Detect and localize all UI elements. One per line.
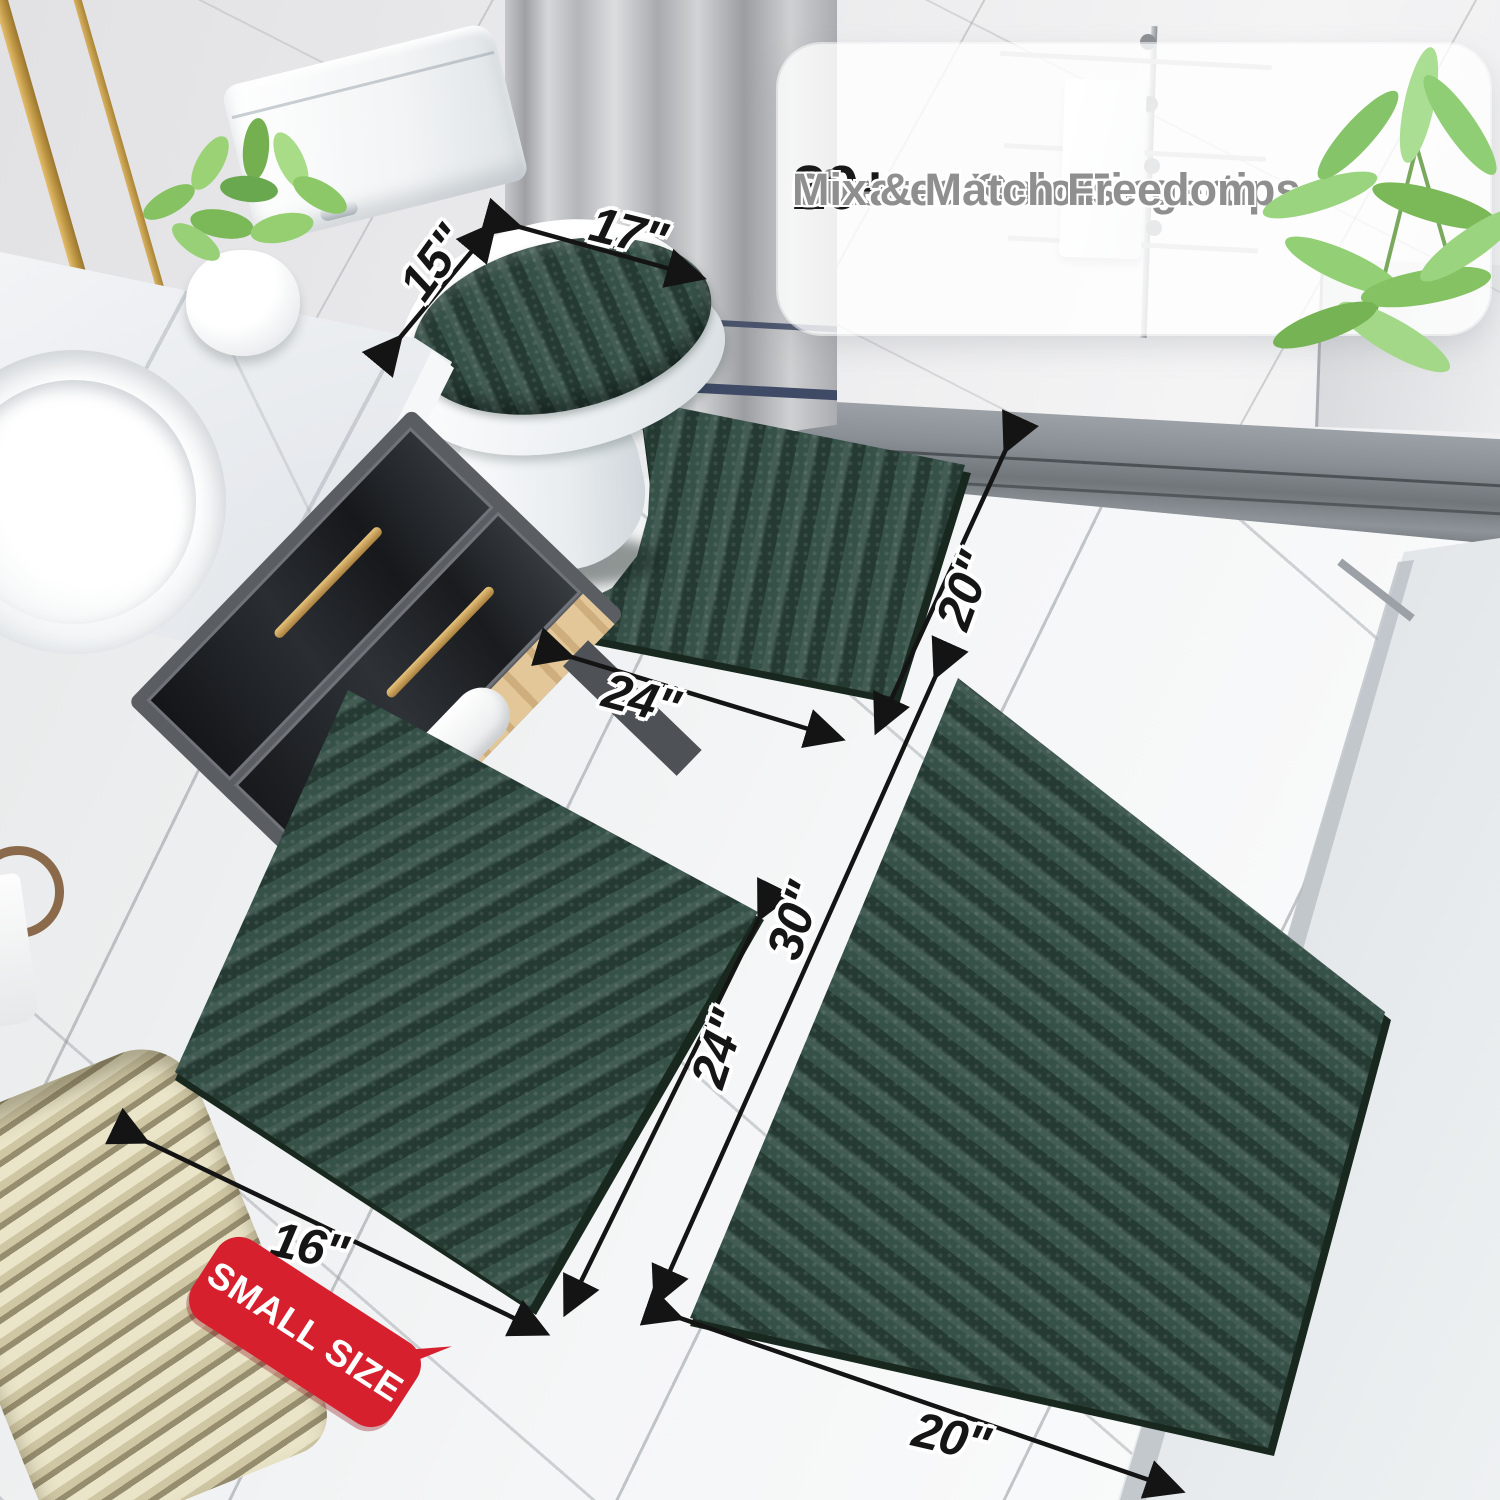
bathroom-product-scene: MISQ ✓ 20+ Sizes at Your Fingertips [0,0,1500,1500]
